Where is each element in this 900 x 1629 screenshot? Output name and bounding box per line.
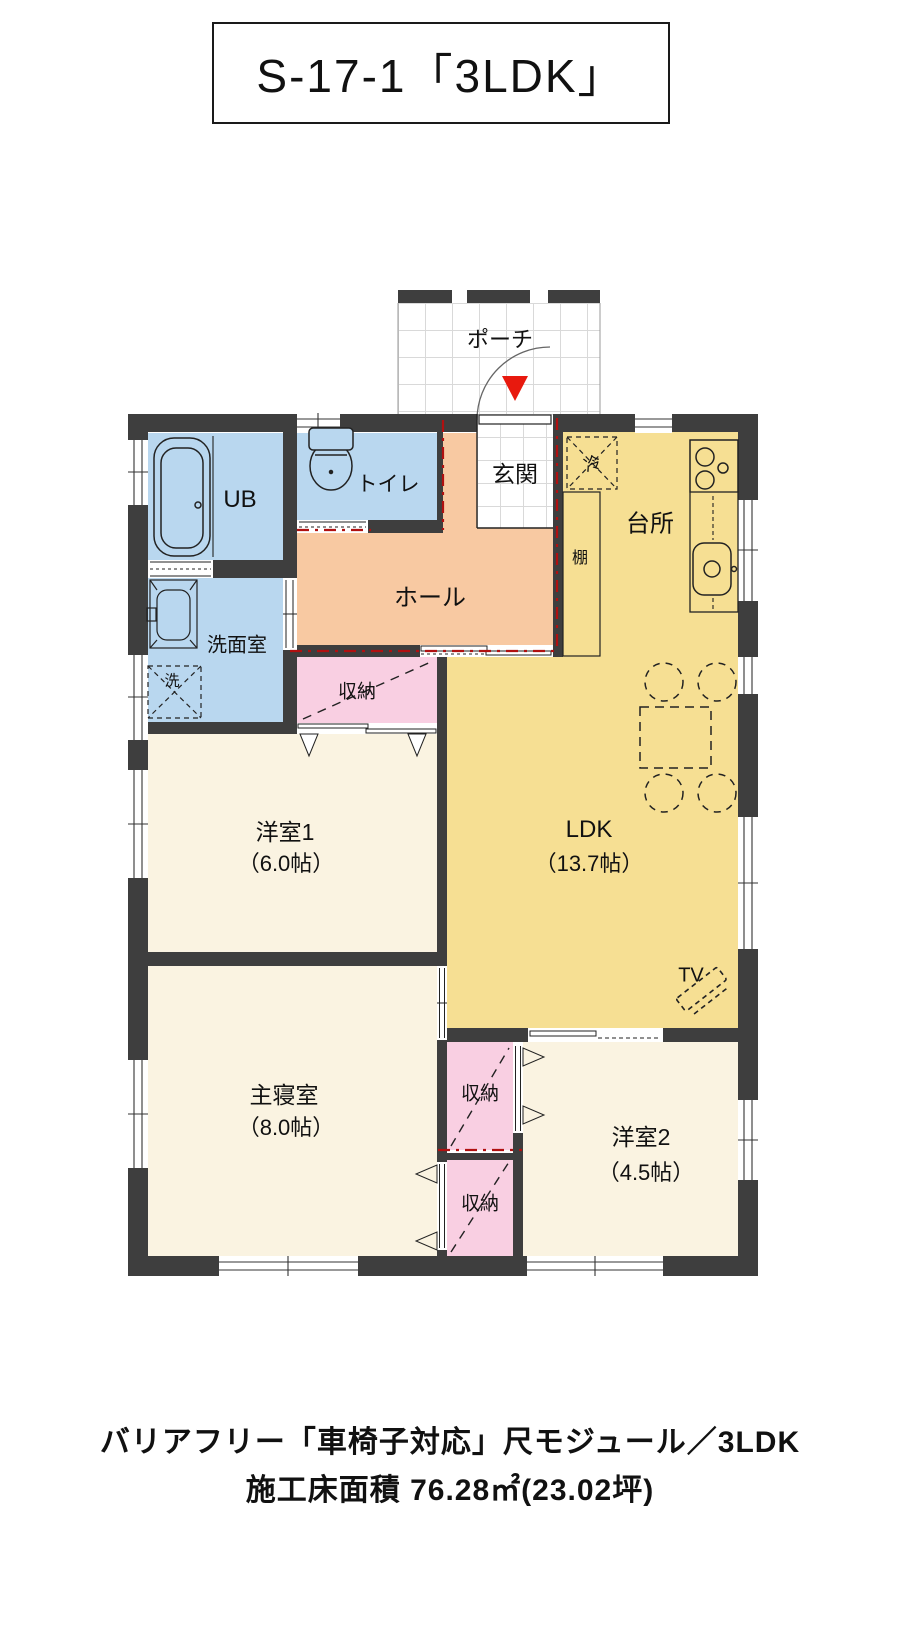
wall-segment bbox=[398, 290, 452, 303]
caption-line2: 施工床面積 76.28㎡(23.02坪) bbox=[0, 1465, 900, 1509]
label-bedroom2-size: （4.5帖） bbox=[598, 1155, 695, 1187]
wall-segment bbox=[128, 952, 447, 966]
label-bedroom1: 洋室1 bbox=[256, 813, 315, 847]
wall-segment bbox=[738, 601, 758, 657]
wall-segment bbox=[437, 1250, 447, 1256]
wall-segment bbox=[128, 505, 148, 655]
label-tv: TV bbox=[678, 965, 704, 988]
wall-segment bbox=[437, 1040, 447, 1162]
window-toilet bbox=[297, 413, 340, 433]
room-ldk bbox=[447, 657, 563, 1028]
window-kitchen-top bbox=[635, 413, 672, 433]
wall-segment bbox=[340, 414, 477, 432]
wall-segment bbox=[283, 414, 297, 578]
label-ub: UB bbox=[223, 486, 256, 514]
page: S-17-1「3LDK」 bbox=[0, 0, 900, 1629]
wall-segment bbox=[513, 1133, 523, 1256]
caption-line1: バリアフリー「車椅子対応」尺モジュール／3LDK bbox=[0, 1417, 900, 1461]
wall-segment bbox=[358, 1256, 527, 1276]
wall-segment bbox=[437, 657, 447, 966]
label-bedroom2: 洋室2 bbox=[612, 1118, 671, 1152]
window-bedroom2-right bbox=[738, 1100, 758, 1180]
label-closet1: 収納 bbox=[338, 677, 376, 704]
label-kitchen: 台所 bbox=[626, 504, 674, 539]
room-porch bbox=[398, 303, 600, 414]
wall-segment bbox=[738, 694, 758, 817]
label-master: 主寝室 bbox=[250, 1076, 319, 1110]
label-bedroom1-size: （6.0帖） bbox=[238, 846, 335, 878]
wall-segment bbox=[213, 560, 283, 578]
wall-segment bbox=[738, 414, 758, 500]
room-ub bbox=[148, 433, 283, 560]
label-washroom: 洗面室 bbox=[207, 629, 267, 658]
wall-segment bbox=[447, 1028, 528, 1042]
label-toilet: トイレ bbox=[357, 468, 420, 498]
door-ldk-bedroom2 bbox=[528, 1028, 663, 1042]
label-master-size: （8.0帖） bbox=[238, 1110, 335, 1142]
door-washroom bbox=[283, 578, 297, 650]
label-closet2: 収納 bbox=[461, 1079, 499, 1106]
label-washer: 洗 bbox=[164, 670, 179, 691]
window-kitchen-right bbox=[738, 500, 758, 601]
wall-segment bbox=[128, 1168, 148, 1276]
window-ldk-small bbox=[738, 657, 758, 694]
wall-segment bbox=[437, 1153, 523, 1160]
door-master bbox=[437, 966, 447, 1040]
window-ub bbox=[128, 440, 148, 505]
wall-segment bbox=[553, 414, 563, 657]
label-entrance: 玄関 bbox=[492, 455, 538, 489]
label-porch: ポーチ bbox=[467, 322, 533, 354]
label-shelf: 棚 bbox=[572, 544, 588, 568]
wall-segment bbox=[128, 414, 148, 440]
wall-segment bbox=[738, 949, 758, 1100]
window-ldk-tall bbox=[738, 817, 758, 949]
label-ldk-size: （13.7帖） bbox=[535, 846, 644, 878]
room-hall-front bbox=[443, 433, 477, 645]
door-toilet bbox=[297, 520, 368, 533]
wall-segment bbox=[128, 740, 148, 770]
window-bedroom1 bbox=[128, 770, 148, 878]
label-closet3: 収納 bbox=[461, 1189, 499, 1216]
wall-segment bbox=[467, 290, 530, 303]
wall-segment bbox=[368, 520, 443, 533]
wall-segment bbox=[672, 414, 738, 432]
window-bedroom2-bottom bbox=[527, 1256, 663, 1276]
window-master-left bbox=[128, 1060, 148, 1168]
wall-segment bbox=[283, 645, 420, 657]
wall-segment bbox=[437, 645, 447, 657]
window-master-bottom bbox=[219, 1256, 358, 1276]
wall-segment bbox=[663, 1028, 738, 1042]
label-hall: ホール bbox=[394, 578, 466, 613]
wall-segment bbox=[128, 414, 297, 432]
wall-segment bbox=[128, 722, 297, 734]
floor-plan: ポーチ 玄関 UB トイレ 冷 台所 棚 ホール 洗面室 洗 収納 洋室1 （6… bbox=[0, 0, 900, 1629]
wall-segment bbox=[553, 414, 635, 432]
wall-segment bbox=[128, 878, 148, 1060]
room-hall-east bbox=[477, 528, 553, 645]
door-ub bbox=[148, 560, 213, 578]
wall-segment bbox=[548, 290, 600, 303]
wall-segment bbox=[437, 414, 443, 533]
wall-segment bbox=[738, 1180, 758, 1276]
label-ldk: LDK bbox=[566, 816, 613, 844]
